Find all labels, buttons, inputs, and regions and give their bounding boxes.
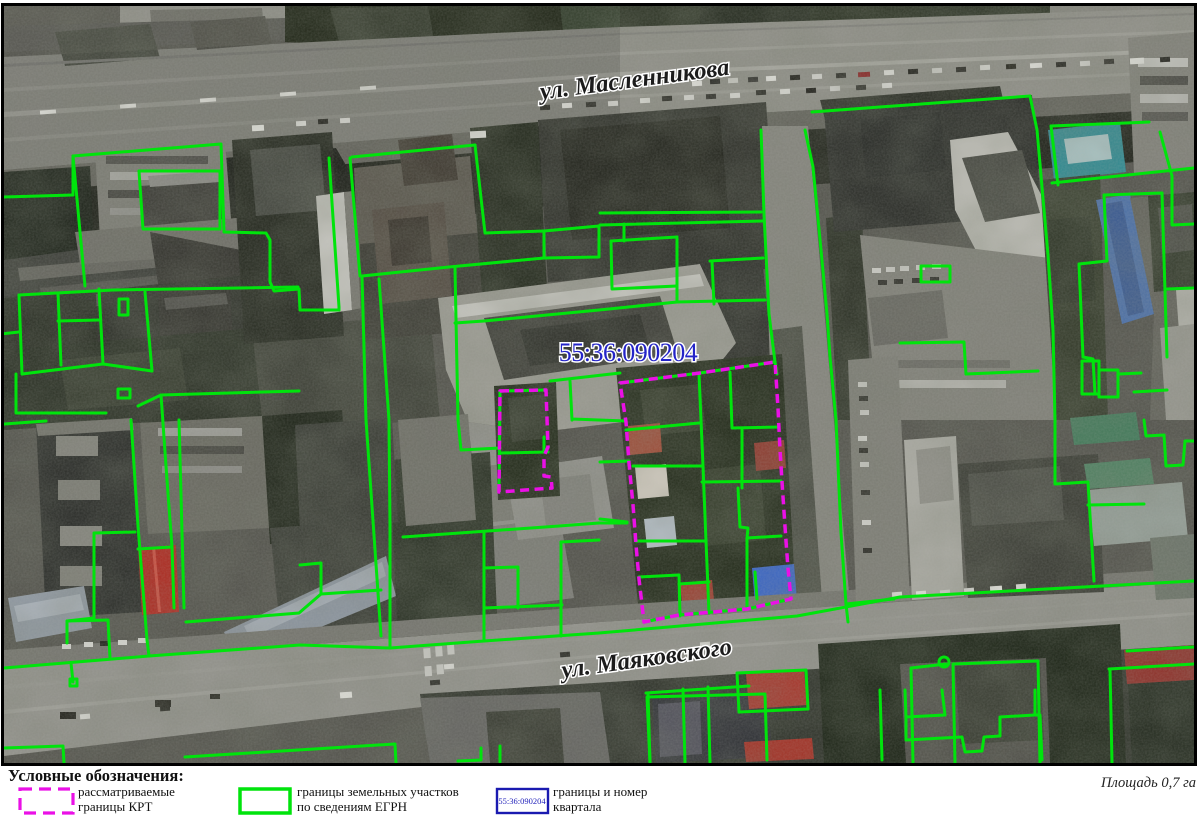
svg-text:по сведениям ЕГРН: по сведениям ЕГРН — [297, 799, 407, 814]
svg-text:границы КРТ: границы КРТ — [78, 799, 153, 814]
svg-text:рассматриваемые: рассматриваемые — [78, 784, 175, 799]
svg-text:границы и номер: границы и номер — [553, 784, 647, 799]
svg-text:55:36:090204: 55:36:090204 — [559, 338, 698, 367]
svg-text:Условные обозначения:: Условные обозначения: — [8, 766, 184, 785]
svg-text:границы земельных участков: границы земельных участков — [297, 784, 459, 799]
svg-text:55:36:090204: 55:36:090204 — [498, 796, 546, 806]
svg-text:Площадь 0,7 га: Площадь 0,7 га — [1100, 775, 1196, 791]
svg-text:квартала: квартала — [553, 799, 602, 814]
